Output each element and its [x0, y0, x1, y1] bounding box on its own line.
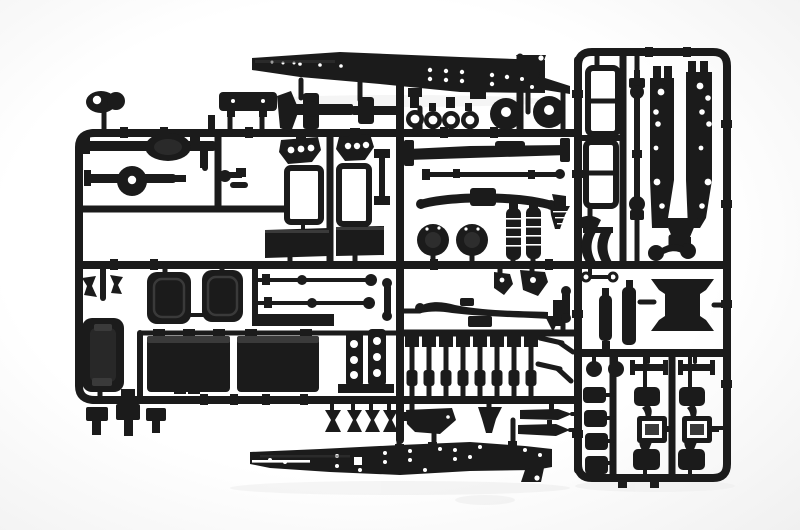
part-coil-spring-1: [506, 201, 521, 260]
sprue-photo: [0, 0, 800, 530]
part-runner-chunk: [252, 314, 334, 326]
dash-2-edge: [336, 227, 384, 230]
buckle-1-inner: [645, 424, 659, 435]
drum-1-hub: [425, 232, 441, 248]
tank-2-top-face: [237, 336, 319, 343]
part-bone-link-right: [561, 286, 571, 323]
diff-face: [154, 139, 182, 155]
rail-top-sheen: [255, 60, 335, 63]
part-cross-plate-base: [338, 384, 394, 393]
door-bracket-top: [94, 324, 112, 331]
buckle-2-inner: [690, 424, 704, 435]
drum-2-hub: [464, 232, 480, 248]
part-dash-panel-2: [336, 226, 384, 256]
part-rail-top-lug-2: [470, 90, 486, 99]
door-inner: [90, 328, 116, 382]
tank-1-top-face: [147, 336, 230, 343]
rail-bottom-sheen: [260, 455, 350, 458]
dash-1-edge: [265, 230, 329, 233]
part-ball-2: [608, 361, 624, 377]
part-ball-1: [586, 361, 602, 377]
photo-canvas: [0, 0, 800, 530]
part-rail-top-lug-1: [408, 88, 422, 97]
part-coil-spring-2: [526, 200, 541, 259]
door-bracket-bottom: [92, 378, 112, 386]
